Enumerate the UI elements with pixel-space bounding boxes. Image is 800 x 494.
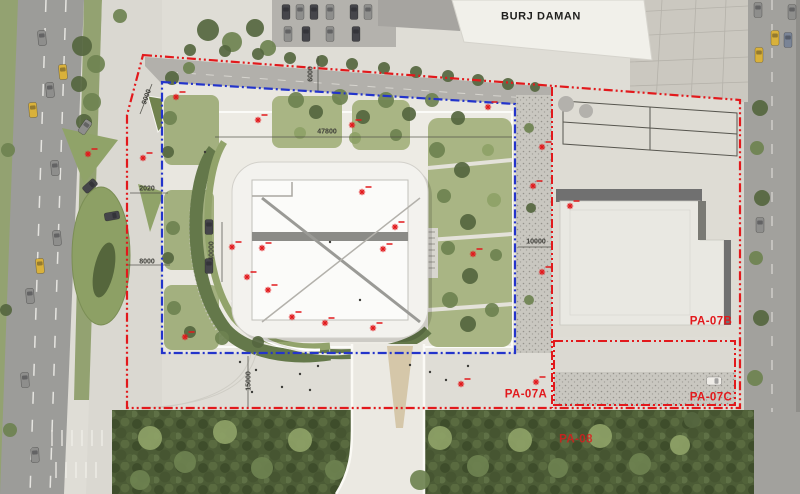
- tree-icon: [174, 451, 196, 473]
- car-icon: [20, 372, 29, 388]
- dimension-label: 6000: [308, 66, 315, 82]
- tree-icon: [325, 460, 345, 480]
- tree-icon: [410, 470, 430, 490]
- car-icon: [350, 5, 358, 20]
- car-icon: [296, 5, 304, 20]
- car-icon: [771, 31, 779, 46]
- architectural-site-plan: BURJ DAMAN PA-07A PA-07B PA-07C PA-08 90…: [0, 0, 800, 494]
- dimension-label: 47800: [317, 129, 336, 136]
- central-building: [232, 162, 432, 342]
- tree-icon: [246, 19, 264, 37]
- tree-icon: [526, 203, 536, 213]
- car-icon: [35, 258, 44, 274]
- tree-icon: [213, 420, 237, 444]
- tree-icon: [215, 331, 229, 345]
- tree-icon: [429, 142, 445, 158]
- dimension-label: 2020: [139, 186, 155, 193]
- car-icon: [25, 288, 34, 304]
- tree-icon: [460, 316, 476, 332]
- tree-icon: [524, 295, 534, 305]
- tree-icon: [332, 89, 348, 105]
- tree-icon: [462, 268, 478, 284]
- tree-icon: [752, 100, 768, 116]
- tree-icon: [138, 426, 162, 450]
- tree-icon: [460, 214, 476, 230]
- tree-icon: [288, 428, 312, 452]
- car-icon: [37, 30, 46, 46]
- tree-icon: [167, 301, 181, 315]
- tree-icon: [441, 241, 455, 255]
- tree-icon: [162, 146, 174, 158]
- tree-icon: [288, 92, 304, 108]
- tree-icon: [0, 304, 12, 316]
- plot-label-pa07c: PA-07C: [690, 392, 732, 404]
- tree-icon: [482, 144, 494, 156]
- tree-icon: [442, 70, 454, 82]
- red-marker-icon: [533, 376, 546, 385]
- tree-icon: [87, 55, 105, 73]
- tree-icon: [485, 303, 499, 317]
- tree-icon: [467, 455, 489, 477]
- tree-icon: [346, 58, 358, 70]
- tree-icon: [754, 190, 770, 206]
- tree-icon: [749, 251, 763, 265]
- tree-icon: [166, 221, 180, 235]
- gray-tower: [378, 0, 460, 31]
- car-icon: [28, 102, 37, 118]
- car-icon: [31, 447, 40, 462]
- tree-icon: [184, 44, 196, 56]
- tree-icon: [390, 129, 402, 141]
- tree-icon: [750, 141, 764, 155]
- tree-icon: [309, 105, 323, 119]
- roof-band: [252, 232, 408, 241]
- tree-icon: [113, 9, 127, 23]
- tree-icon: [502, 78, 514, 90]
- tree-icon: [670, 435, 690, 455]
- tree-icon: [530, 82, 540, 92]
- plot-label-pa07a: PA-07A: [505, 389, 547, 401]
- tree-icon: [548, 458, 568, 478]
- tree-icon: [684, 412, 700, 428]
- tree-icon: [251, 457, 273, 479]
- tree-icon: [3, 423, 17, 437]
- dimension-label: 8000: [139, 259, 155, 266]
- car-icon: [784, 33, 792, 48]
- red-marker-icon: [458, 378, 471, 387]
- car-icon: [205, 220, 213, 235]
- tree-icon: [284, 52, 296, 64]
- tree-icon: [349, 132, 361, 144]
- car-icon: [284, 27, 292, 42]
- tree-icon: [378, 92, 394, 108]
- car-icon: [707, 377, 722, 385]
- car-icon: [310, 5, 318, 20]
- car-icon: [45, 82, 54, 98]
- tree-icon: [252, 48, 264, 60]
- forest: [112, 410, 754, 494]
- tree-icon: [356, 110, 370, 124]
- burj-daman-label: BURJ DAMAN: [501, 12, 581, 23]
- car-icon: [326, 5, 334, 20]
- car-icon: [755, 48, 763, 63]
- tree-icon: [402, 107, 416, 121]
- tree-icon: [508, 428, 532, 452]
- tree-icon: [252, 336, 264, 348]
- car-icon: [352, 27, 360, 42]
- tree-icon: [1, 143, 15, 157]
- tree-icon: [490, 249, 502, 261]
- tree-icon: [487, 193, 501, 207]
- tree-icon: [437, 189, 451, 203]
- tree-icon: [72, 36, 92, 56]
- dimension-label: 40000: [209, 241, 216, 260]
- tree-icon: [524, 123, 534, 133]
- car-icon: [364, 5, 372, 20]
- tree-icon: [163, 111, 177, 125]
- tree-icon: [442, 292, 458, 308]
- car-icon: [52, 230, 61, 246]
- tree-icon: [753, 310, 769, 326]
- plot-label-pa08: PA-08: [559, 434, 593, 446]
- plan-graphics: [0, 0, 800, 494]
- tree-icon: [451, 111, 465, 125]
- pa07b-plot: [554, 86, 740, 337]
- car-icon: [302, 27, 310, 42]
- tree-icon: [183, 62, 195, 74]
- right-road: [744, 0, 800, 420]
- car-icon: [58, 64, 67, 80]
- tree-icon: [83, 93, 101, 111]
- tree-icon: [747, 370, 763, 386]
- car-icon: [788, 5, 796, 20]
- dimension-label: 10000: [526, 239, 545, 246]
- sidewalk-strip: [516, 95, 552, 353]
- tree-icon: [130, 470, 150, 490]
- car-icon: [326, 27, 334, 42]
- car-icon: [754, 3, 762, 18]
- tree-icon: [197, 19, 219, 41]
- tree-icon: [428, 426, 452, 450]
- tree-icon: [219, 45, 231, 57]
- tree-icon: [162, 252, 174, 264]
- burj-daman-building: [452, 0, 652, 60]
- tree-icon: [454, 162, 470, 178]
- plot-label-pa07b: PA-07B: [690, 316, 732, 328]
- tree-icon: [71, 76, 87, 92]
- car-icon: [756, 218, 764, 233]
- car-icon: [205, 259, 213, 274]
- car-icon: [282, 5, 290, 20]
- car-icon: [50, 160, 59, 176]
- dimension-label: 15000: [246, 371, 253, 390]
- tree-icon: [629, 453, 651, 475]
